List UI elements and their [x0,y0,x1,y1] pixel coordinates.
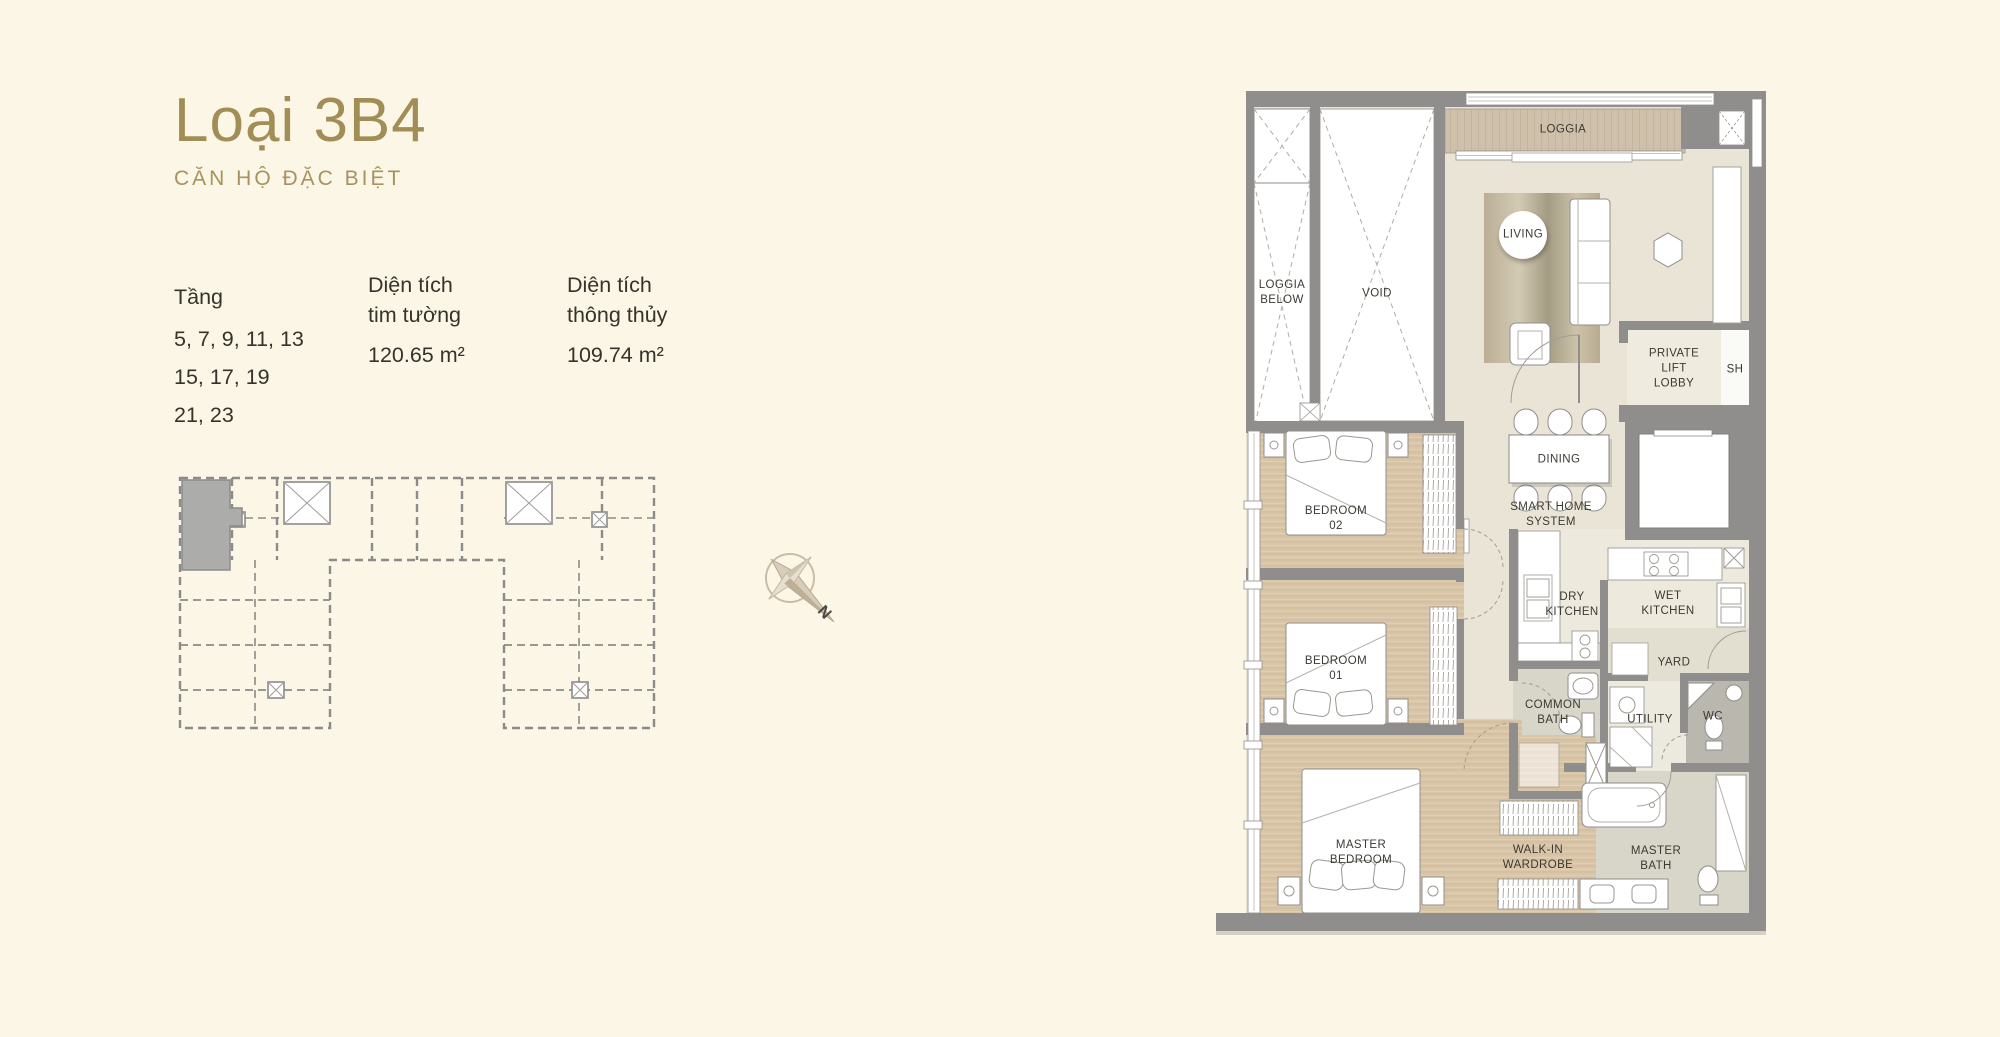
floors-column: Tầng 5, 7, 9, 11, 13 15, 17, 19 21, 23 [174,282,304,438]
room-label-dry-kitchen: DRY KITCHEN [1545,590,1598,620]
room-label-bedroom-01: BEDROOM 01 [1305,654,1367,684]
room-label-utility: UTILITY [1627,713,1673,728]
lift [1639,430,1729,528]
room-label-common-bath: COMMON BATH [1525,698,1581,728]
room-label-private-lift-lobby: PRIVATE LIFT LOBBY [1649,347,1699,392]
floors-label: Tầng [174,282,304,312]
room-label-wet-kitchen: WET KITCHEN [1641,589,1694,619]
page-subtitle: CĂN HỘ ĐẶC BIỆT [174,167,427,191]
floors-values: 5, 7, 9, 11, 13 15, 17, 19 21, 23 [174,324,304,430]
floors-line: 5, 7, 9, 11, 13 [174,324,304,354]
room-label-master-bath: MASTER BATH [1631,844,1681,874]
room-label-bedroom-02: BEDROOM 02 [1305,504,1367,534]
bedroom02-furniture [1264,431,1456,553]
net-area-label: Diện tích thông thủy [567,270,667,330]
room-label-dining: DINING [1538,453,1581,468]
gross-area-column: Diện tích tim tường 120.65 m² [368,270,465,370]
floors-line: 15, 17, 19 [174,362,304,392]
compass-rose-icon [726,518,866,658]
room-label-master-bedroom: MASTER BEDROOM [1330,838,1392,868]
building-key-plan [172,460,667,740]
floor-plan-drawing [1216,83,1766,937]
room-label-smart-home: SMART HOME SYSTEM [1510,500,1592,530]
room-label-living: LIVING [1503,228,1543,243]
room-label-void: VOID [1362,287,1392,302]
room-label-wc: WC [1703,710,1723,725]
gross-area-label: Diện tích tim tường [368,270,465,330]
header: Loại 3B4 CĂN HỘ ĐẶC BIỆT [174,88,427,191]
page-title: Loại 3B4 [174,88,427,153]
net-area-value: 109.74 m² [567,340,667,370]
room-label-loggia-below: LOGGIA BELOW [1259,278,1306,308]
smart-home-panel [1464,519,1469,553]
room-label-walkin-wardrobe: WALK-IN WARDROBE [1503,843,1574,873]
net-area-column: Diện tích thông thủy 109.74 m² [567,270,667,370]
room-label-yard: YARD [1658,656,1691,671]
compass: N [726,518,866,658]
floors-line: 21, 23 [174,400,304,430]
room-label-sh: SH [1727,363,1744,378]
apartment-floor-plan: LOGGIA LOGGIA BELOW VOID LIVING PRIVATE … [1216,83,1766,937]
gross-area-value: 120.65 m² [368,340,465,370]
room-label-loggia: LOGGIA [1540,123,1587,138]
floorplan-page: Loại 3B4 CĂN HỘ ĐẶC BIỆT Tầng 5, 7, 9, 1… [0,0,2000,1037]
